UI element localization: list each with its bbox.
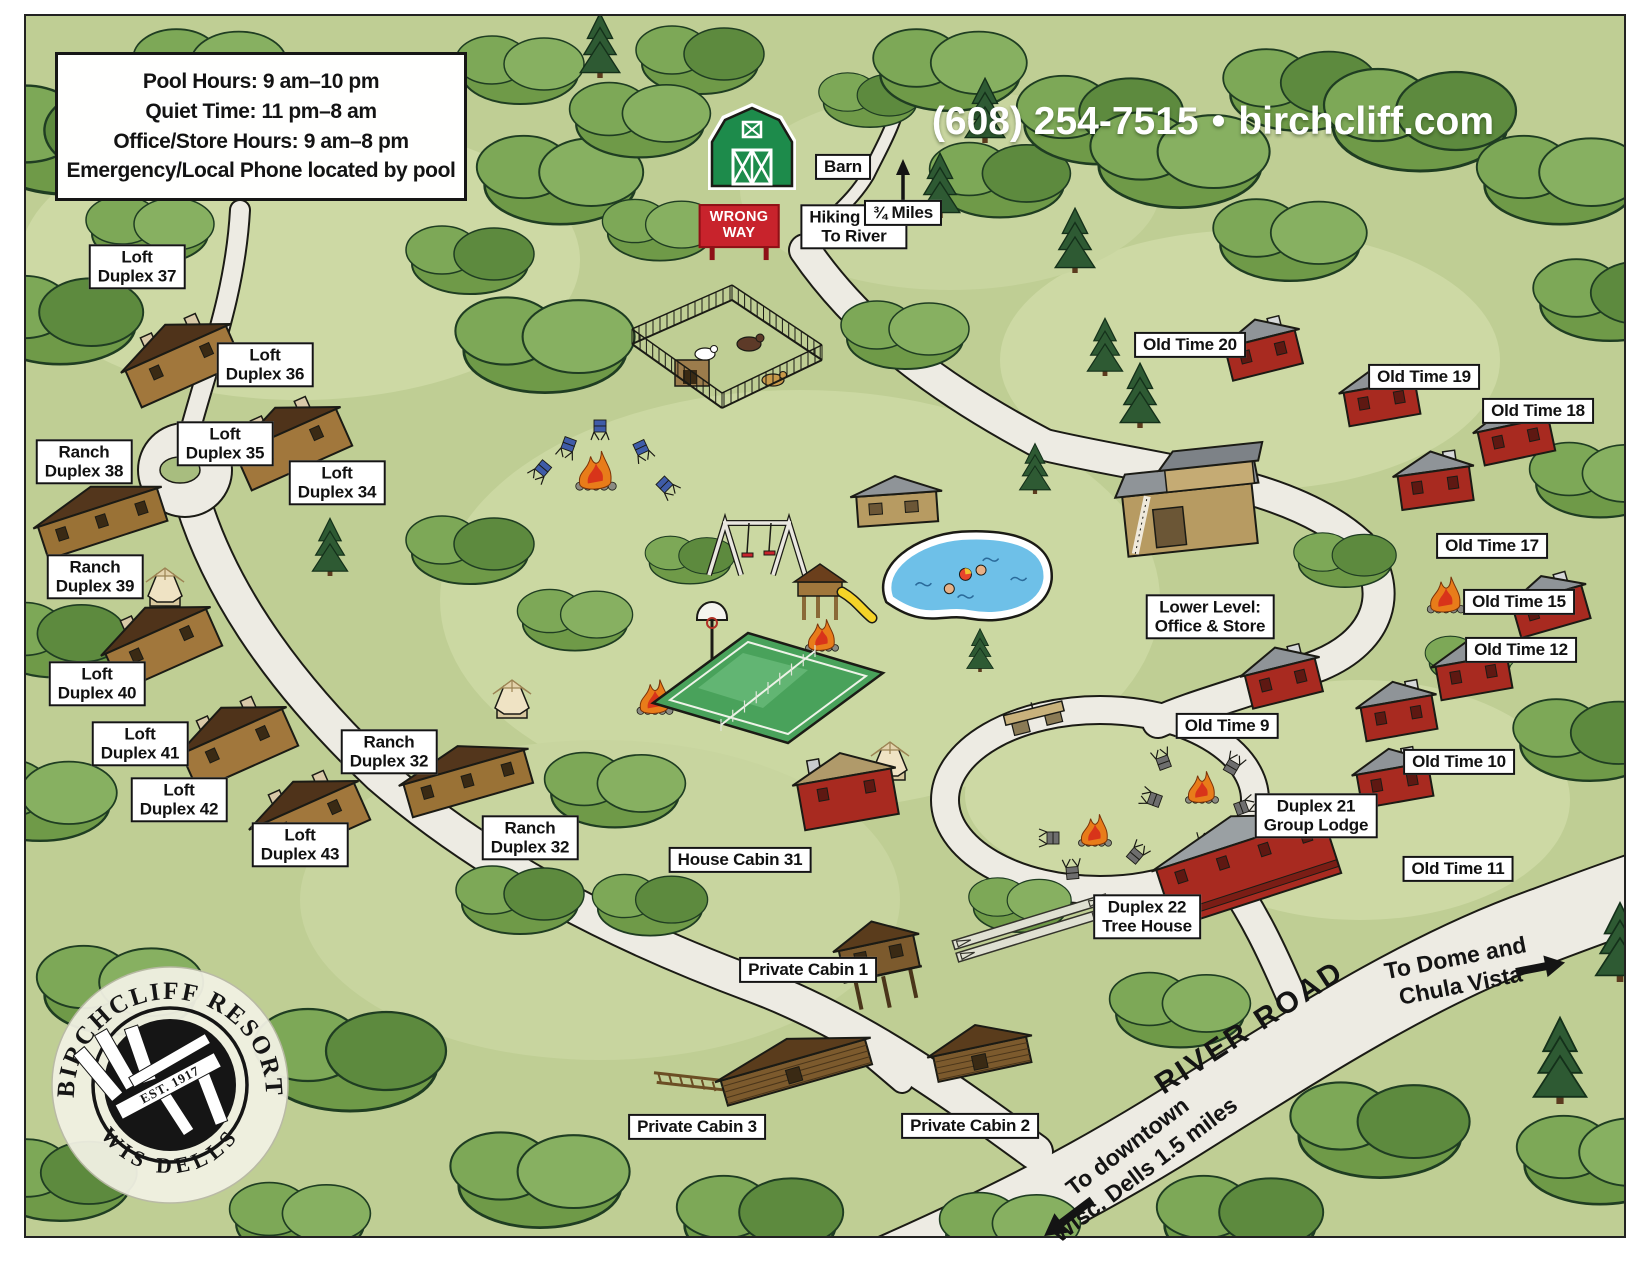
label-loft-duplex-37-line1: Loft xyxy=(98,247,177,266)
quiet-time-text: Quiet Time: 11 pm–8 am xyxy=(60,97,462,127)
label-ranch-duplex-38-line1: Ranch xyxy=(45,442,124,461)
wrong-way-line2: WAY xyxy=(710,226,769,242)
label-old-time-19-line1: Old Time 19 xyxy=(1377,367,1471,386)
label-old-time-19: Old Time 19 xyxy=(1368,364,1480,390)
label-duplex-22-tree-house-line2: Tree House xyxy=(1102,917,1192,936)
label-old-time-9: Old Time 9 xyxy=(1176,713,1279,739)
tree-cluster-icon xyxy=(406,226,534,294)
label-lower-level-office-store: Lower Level:Office & Store xyxy=(1146,594,1275,639)
label-loft-duplex-35-line1: Loft xyxy=(186,424,265,443)
phone-number: (608) 254-7515 xyxy=(932,100,1199,143)
label-barn-line1: Barn xyxy=(824,157,862,176)
label-ranch-duplex-38-line2: Duplex 38 xyxy=(45,462,124,481)
label-lower-level-office-store-line1: Lower Level: xyxy=(1155,597,1266,616)
label-old-time-20-line1: Old Time 20 xyxy=(1143,335,1237,354)
tree-cluster-icon xyxy=(517,589,632,650)
label-loft-duplex-36: LoftDuplex 36 xyxy=(217,342,314,387)
label-barn: Barn xyxy=(815,154,871,180)
label-loft-duplex-40-line1: Loft xyxy=(58,664,137,683)
tree-cluster-icon xyxy=(873,29,1027,111)
label-duplex-22-tree-house-line1: Duplex 22 xyxy=(1102,897,1192,916)
label-private-cabin-3-line1: Private Cabin 3 xyxy=(637,1117,757,1136)
contact-header: (608) 254-7515•birchcliff.com xyxy=(932,100,1494,144)
label-old-time-10-line1: Old Time 10 xyxy=(1412,752,1506,771)
label-loft-duplex-43-line2: Duplex 43 xyxy=(261,845,340,864)
tree-cluster-icon xyxy=(450,1132,629,1227)
website-url: birchcliff.com xyxy=(1238,100,1494,143)
tree-cluster-icon xyxy=(1477,136,1643,224)
tree-cluster-icon xyxy=(841,301,969,369)
label-loft-duplex-36-line1: Loft xyxy=(226,345,305,364)
tree-cluster-icon xyxy=(406,516,534,584)
tree-cluster-icon xyxy=(677,1176,843,1264)
label-loft-duplex-35-line2: Duplex 35 xyxy=(186,444,265,463)
label-old-time-10: Old Time 10 xyxy=(1403,749,1515,775)
label-ranch-duplex-32-upper-line1: Ranch xyxy=(350,732,429,751)
wrong-way-sign: WRONG WAY xyxy=(699,204,780,248)
label-old-time-15-line1: Old Time 15 xyxy=(1472,592,1566,611)
emergency-phone-text: Emergency/Local Phone located by pool xyxy=(60,156,462,186)
label-private-cabin-2-line1: Private Cabin 2 xyxy=(910,1116,1030,1135)
label-old-time-18-line1: Old Time 18 xyxy=(1491,401,1585,420)
label-ranch-duplex-39: RanchDuplex 39 xyxy=(47,554,144,599)
label-loft-duplex-40: LoftDuplex 40 xyxy=(49,661,146,706)
label-ranch-duplex-32-upper: RanchDuplex 32 xyxy=(341,729,438,774)
label-loft-duplex-37-line2: Duplex 37 xyxy=(98,267,177,286)
label-three-quarter-miles-line1: ¾ Miles xyxy=(873,203,933,222)
label-loft-duplex-41: LoftDuplex 41 xyxy=(92,721,189,766)
separator-dot: • xyxy=(1212,100,1226,143)
label-private-cabin-3: Private Cabin 3 xyxy=(628,1114,766,1140)
office-hours-text: Office/Store Hours: 9 am–8 pm xyxy=(60,127,462,157)
label-old-time-11-line1: Old Time 11 xyxy=(1412,859,1505,878)
tree-cluster-icon xyxy=(1294,533,1396,587)
label-private-cabin-2: Private Cabin 2 xyxy=(901,1113,1039,1139)
label-old-time-11: Old Time 11 xyxy=(1403,856,1514,882)
tree-cluster-icon xyxy=(1290,1082,1469,1177)
label-three-quarter-miles: ¾ Miles xyxy=(864,200,942,226)
label-house-cabin-31-line1: House Cabin 31 xyxy=(678,850,803,869)
label-duplex-22-tree-house: Duplex 22Tree House xyxy=(1093,894,1201,939)
label-loft-duplex-42-line2: Duplex 42 xyxy=(140,800,219,819)
label-loft-duplex-34: LoftDuplex 34 xyxy=(289,460,386,505)
info-box: Pool Hours: 9 am–10 pm Quiet Time: 11 pm… xyxy=(55,52,467,201)
label-ranch-duplex-39-line2: Duplex 39 xyxy=(56,577,135,596)
label-loft-duplex-34-line1: Loft xyxy=(298,463,377,482)
label-loft-duplex-35: LoftDuplex 35 xyxy=(177,421,274,466)
tree-cluster-icon xyxy=(570,83,711,158)
label-old-time-12: Old Time 12 xyxy=(1465,637,1577,663)
pool-hours-text: Pool Hours: 9 am–10 pm xyxy=(60,67,462,97)
label-loft-duplex-37: LoftDuplex 37 xyxy=(89,244,186,289)
label-old-time-15: Old Time 15 xyxy=(1463,589,1575,615)
label-loft-duplex-41-line2: Duplex 41 xyxy=(101,744,180,763)
tree-cluster-icon xyxy=(636,26,764,94)
label-ranch-duplex-32-lower-line1: Ranch xyxy=(491,818,570,837)
label-duplex-21-group-lodge: Duplex 21Group Lodge xyxy=(1255,793,1378,838)
label-duplex-21-group-lodge-line1: Duplex 21 xyxy=(1264,796,1369,815)
label-loft-duplex-40-line2: Duplex 40 xyxy=(58,684,137,703)
tree-cluster-icon xyxy=(592,874,707,935)
birchcliff-resort-map: BIRCHCLIFF RESORT WIS DELLS EST. xyxy=(0,0,1650,1275)
label-loft-duplex-43-line1: Loft xyxy=(261,825,340,844)
tree-cluster-icon xyxy=(1157,1176,1323,1264)
label-old-time-9-line1: Old Time 9 xyxy=(1185,716,1270,735)
label-ranch-duplex-32-lower: RanchDuplex 32 xyxy=(482,815,579,860)
wrong-way-line1: WRONG xyxy=(710,210,769,226)
tree-cluster-icon xyxy=(1213,199,1367,281)
label-loft-duplex-36-line2: Duplex 36 xyxy=(226,365,305,384)
tree-cluster-icon xyxy=(456,36,584,104)
label-loft-duplex-42: LoftDuplex 42 xyxy=(131,777,228,822)
label-private-cabin-1: Private Cabin 1 xyxy=(739,957,877,983)
label-ranch-duplex-32-lower-line2: Duplex 32 xyxy=(491,838,570,857)
label-loft-duplex-34-line2: Duplex 34 xyxy=(298,483,377,502)
label-hiking-trail-line2: To River xyxy=(809,227,898,246)
label-old-time-20: Old Time 20 xyxy=(1134,332,1246,358)
label-house-cabin-31: House Cabin 31 xyxy=(669,847,812,873)
tree-cluster-icon xyxy=(456,866,584,934)
label-ranch-duplex-39-line1: Ranch xyxy=(56,557,135,576)
label-old-time-18: Old Time 18 xyxy=(1482,398,1594,424)
label-loft-duplex-42-line1: Loft xyxy=(140,780,219,799)
tree-cluster-icon xyxy=(230,1183,371,1258)
label-old-time-17-line1: Old Time 17 xyxy=(1445,536,1539,555)
label-old-time-17: Old Time 17 xyxy=(1436,533,1548,559)
label-old-time-12-line1: Old Time 12 xyxy=(1474,640,1568,659)
label-loft-duplex-41-line1: Loft xyxy=(101,724,180,743)
birchcliff-resort-logo: BIRCHCLIFF RESORT WIS DELLS EST. xyxy=(52,967,288,1203)
tree-cluster-icon xyxy=(455,297,634,392)
label-ranch-duplex-38: RanchDuplex 38 xyxy=(36,439,133,484)
label-lower-level-office-store-line2: Office & Store xyxy=(1155,617,1266,636)
label-loft-duplex-43: LoftDuplex 43 xyxy=(252,822,349,867)
label-private-cabin-1-line1: Private Cabin 1 xyxy=(748,960,868,979)
label-duplex-21-group-lodge-line2: Group Lodge xyxy=(1264,816,1369,835)
label-ranch-duplex-32-upper-line2: Duplex 32 xyxy=(350,752,429,771)
